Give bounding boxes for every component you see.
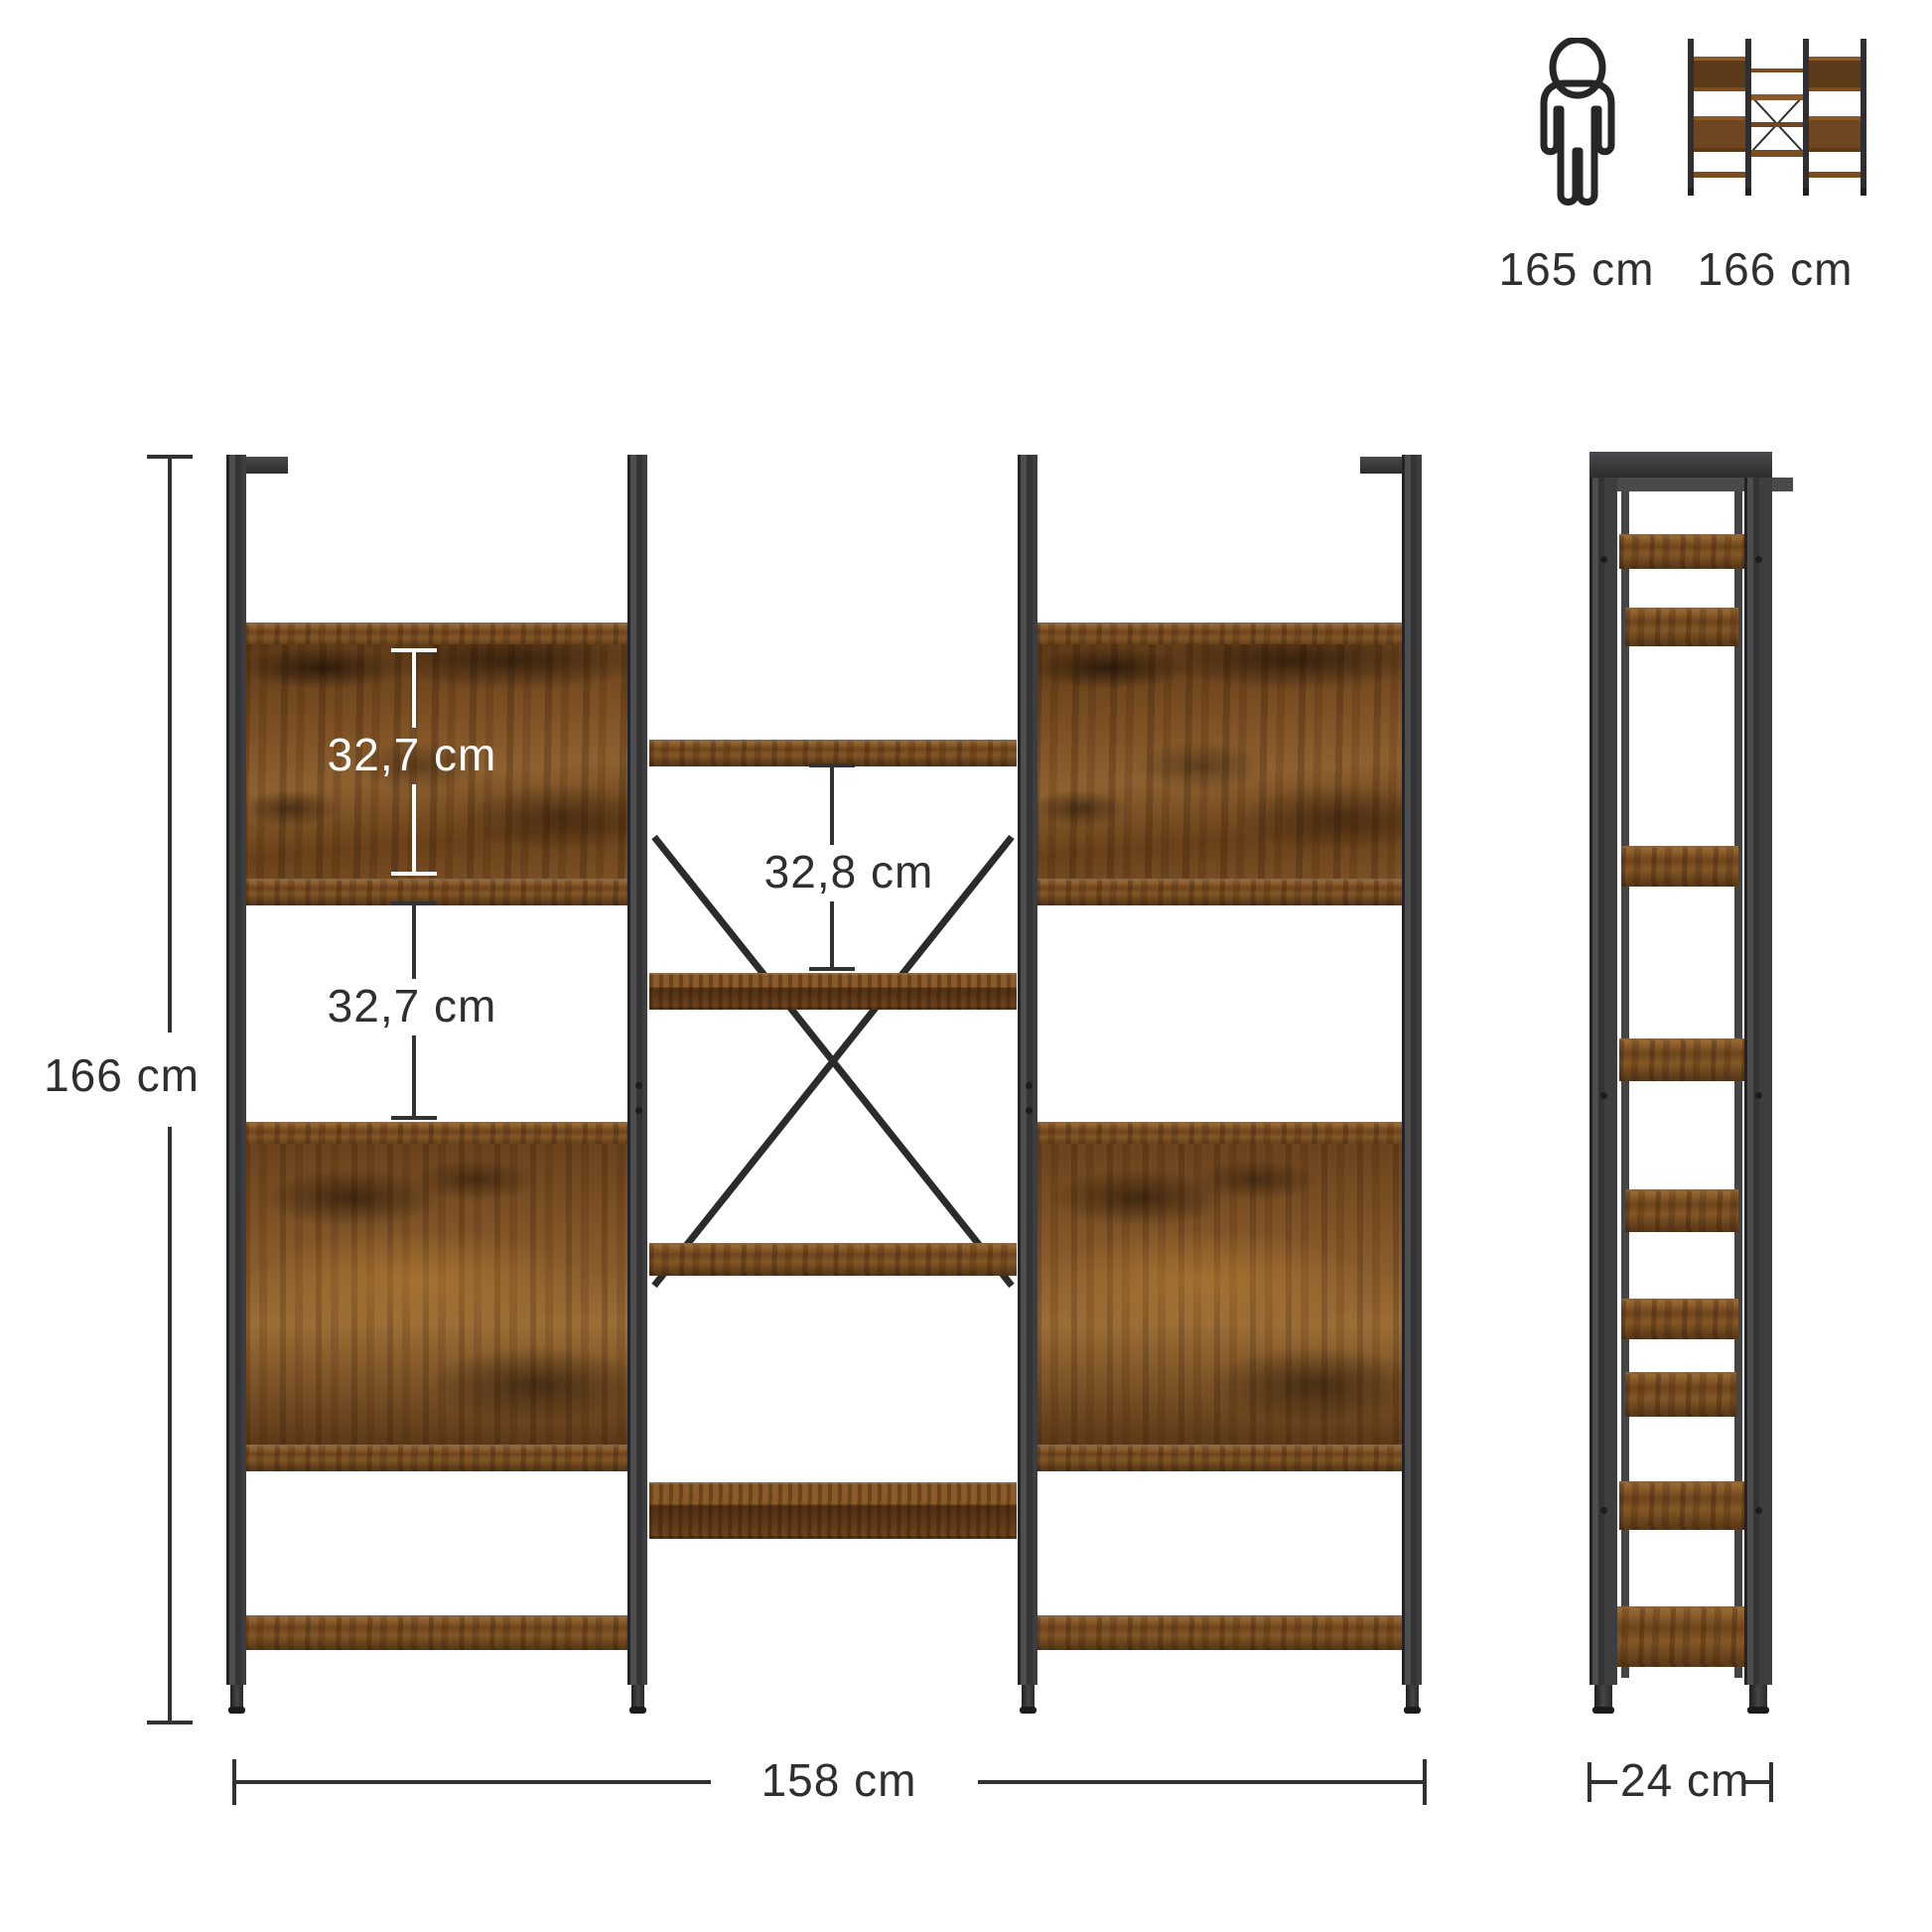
shelf — [1035, 1445, 1404, 1471]
dim-tick — [147, 1721, 193, 1725]
side-shelf-edge — [1619, 1481, 1744, 1530]
dim-line — [412, 650, 416, 728]
shelf — [1035, 879, 1404, 905]
foot-pad — [228, 1707, 245, 1714]
dim-tick — [1769, 1762, 1773, 1802]
side-shelf-edge — [1621, 846, 1738, 887]
foot — [1594, 1685, 1612, 1709]
side-shelf-edge — [1625, 608, 1738, 646]
dim-line — [234, 1780, 711, 1784]
back-panel — [244, 1144, 629, 1445]
side-frame-post — [1744, 452, 1772, 1685]
foot-pad — [629, 1707, 646, 1714]
shelf — [244, 1615, 629, 1650]
dim-tick — [1423, 1759, 1427, 1805]
dim-line — [168, 457, 172, 1033]
dim-line — [412, 1035, 416, 1118]
foot — [631, 1685, 644, 1709]
foot — [1749, 1685, 1767, 1709]
shelf — [649, 973, 1017, 1010]
foot-pad — [1747, 1707, 1769, 1714]
foot — [230, 1685, 243, 1709]
shelf — [244, 879, 629, 905]
dim-line — [978, 1780, 1425, 1784]
frame-post — [1402, 455, 1422, 1685]
dim-line — [412, 784, 416, 874]
side-shelf-edge — [1621, 1299, 1738, 1339]
side-shelf-edge — [1619, 534, 1744, 569]
foot — [1406, 1685, 1419, 1709]
dim-line — [830, 765, 834, 845]
depth-label: 24 cm — [1620, 1755, 1741, 1805]
frame-post — [627, 455, 647, 1685]
back-panel — [1035, 1144, 1404, 1445]
frame-post — [1018, 455, 1037, 1685]
lower-gap-label: 32,7 cm — [318, 981, 506, 1031]
dim-tick — [391, 872, 437, 876]
dim-tick — [809, 967, 855, 971]
foot-pad — [1020, 1707, 1036, 1714]
dim-tick — [391, 1116, 437, 1120]
shelf — [649, 1482, 1017, 1539]
front-view — [0, 0, 1509, 1932]
foot — [1022, 1685, 1035, 1709]
center-gap-label: 32,8 cm — [755, 847, 943, 897]
shelf — [649, 740, 1017, 766]
side-top-rail — [1589, 452, 1772, 478]
upper-gap-label: 32,7 cm — [318, 730, 506, 779]
foot-pad — [1404, 1707, 1421, 1714]
dim-line — [1743, 1780, 1769, 1784]
back-panel — [1035, 644, 1404, 879]
side-shelf-edge — [1625, 1189, 1738, 1232]
shelf — [244, 1445, 629, 1471]
top-rail — [244, 457, 288, 474]
dim-line — [412, 903, 416, 979]
dim-line — [830, 901, 834, 969]
shelf — [649, 1243, 1017, 1276]
dim-line — [1591, 1780, 1617, 1784]
dim-line — [168, 1127, 172, 1723]
overall-height-label: 166 cm — [30, 1050, 213, 1100]
side-frame-post — [1589, 452, 1617, 1685]
product-dimension-diagram: 165 cm 166 cm — [0, 0, 1932, 1932]
side-shelf-edge — [1625, 1372, 1736, 1417]
side-shelf-edge — [1619, 1038, 1744, 1081]
side-view — [1569, 0, 1932, 1932]
foot-pad — [1592, 1707, 1614, 1714]
top-rail — [1360, 457, 1404, 474]
overall-width-label: 158 cm — [715, 1755, 963, 1805]
shelf — [1035, 1615, 1404, 1650]
frame-post — [226, 455, 246, 1685]
side-shelf-edge — [1609, 1606, 1754, 1667]
